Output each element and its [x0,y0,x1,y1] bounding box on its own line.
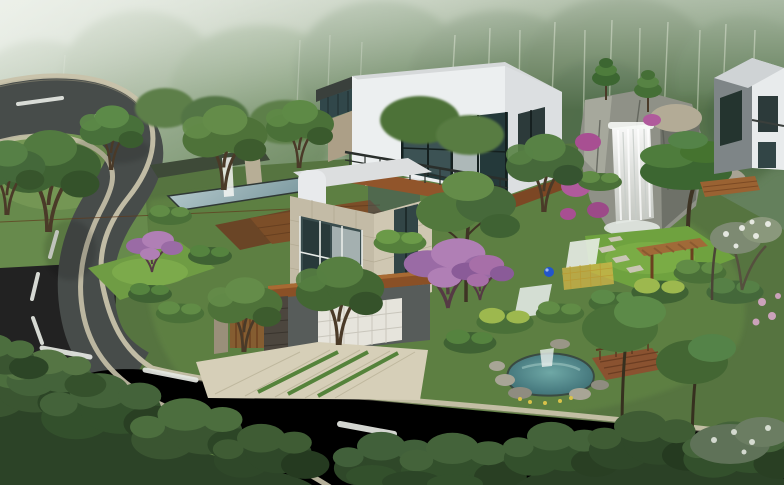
upper-cascade [566,238,600,268]
neighbor-villa [714,58,784,174]
rendering-canvas: Aerial rendering of a modern hillside vi… [0,0,784,485]
neighbor-window [758,96,778,132]
neighbor-window-side [720,90,742,146]
blue-ball [544,267,554,277]
villa-rendering-svg: Aerial rendering of a modern hillside vi… [0,0,784,485]
pond-inflow [540,348,554,367]
